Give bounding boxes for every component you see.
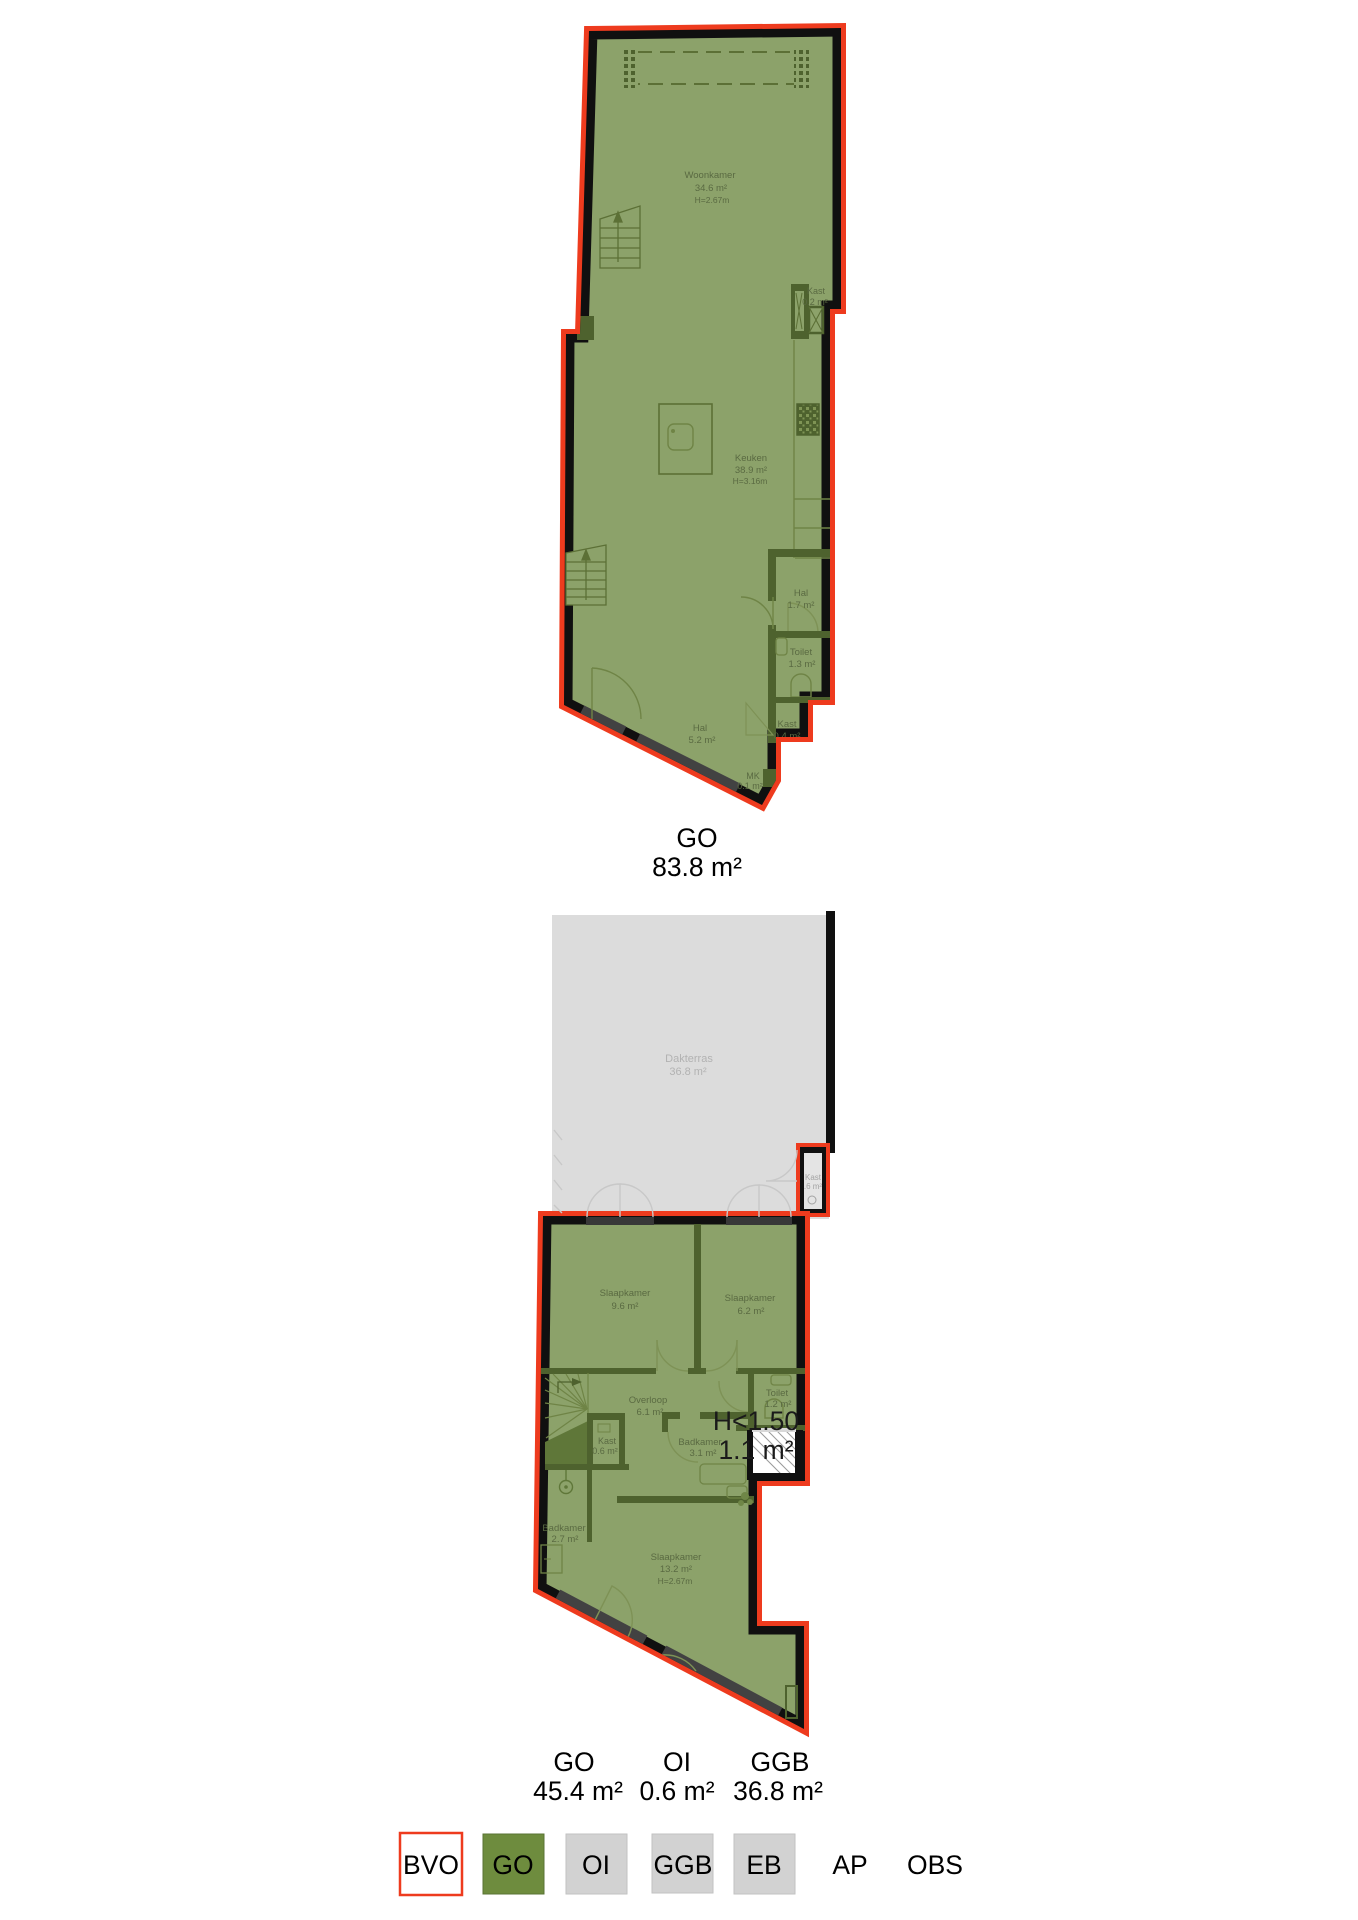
svg-text:1.1 m²: 1.1 m² — [718, 1435, 793, 1465]
svg-text:3.1 m²: 3.1 m² — [690, 1448, 717, 1459]
svg-text:Kast: Kast — [805, 1173, 822, 1182]
svg-text:OI: OI — [582, 1850, 610, 1880]
svg-text:Badkamer: Badkamer — [542, 1523, 585, 1534]
svg-text:Keuken: Keuken — [735, 453, 767, 464]
svg-text:13.2 m²: 13.2 m² — [660, 1564, 692, 1575]
svg-text:.6 m²: .6 m² — [804, 1182, 823, 1191]
svg-text:OBS: OBS — [907, 1850, 963, 1880]
svg-text:H=2.67m: H=2.67m — [695, 195, 730, 205]
svg-text:Kast: Kast — [777, 719, 796, 730]
svg-text:6.1 m²: 6.1 m² — [637, 1407, 664, 1418]
svg-text:45.4 m²: 45.4 m² — [533, 1776, 623, 1806]
svg-text:1.7 m²: 1.7 m² — [788, 600, 815, 611]
svg-text:2.7 m²: 2.7 m² — [552, 1534, 579, 1545]
svg-text:0.6 m²: 0.6 m² — [592, 1446, 618, 1456]
svg-text:EB: EB — [746, 1850, 781, 1880]
svg-text:5.2 m²: 5.2 m² — [689, 735, 716, 746]
svg-text:Dakterras: Dakterras — [665, 1053, 713, 1065]
svg-text:H=3.16m: H=3.16m — [733, 476, 768, 486]
svg-text:0.6 m²: 0.6 m² — [639, 1776, 714, 1806]
svg-text:MK: MK — [746, 771, 760, 781]
svg-text:OI: OI — [663, 1747, 691, 1777]
svg-text:H=2.67m: H=2.67m — [658, 1576, 693, 1586]
svg-text:9.6 m²: 9.6 m² — [612, 1301, 639, 1312]
svg-text:38.9 m²: 38.9 m² — [735, 465, 767, 476]
svg-text:GGB: GGB — [751, 1747, 810, 1777]
svg-text:GO: GO — [676, 823, 717, 853]
svg-text:36.8 m²: 36.8 m² — [733, 1776, 823, 1806]
svg-text:GO: GO — [553, 1747, 594, 1777]
svg-text:Slaapkamer: Slaapkamer — [600, 1288, 651, 1299]
svg-text:36.8 m²: 36.8 m² — [669, 1066, 707, 1078]
svg-text:Badkamer: Badkamer — [678, 1437, 721, 1448]
svg-text:BVO: BVO — [403, 1850, 459, 1880]
svg-text:Toilet: Toilet — [790, 647, 813, 658]
svg-text:H<1.50: H<1.50 — [713, 1406, 799, 1436]
svg-text:GGB: GGB — [654, 1850, 713, 1880]
svg-text:Toilet: Toilet — [766, 1388, 789, 1399]
svg-text:1.3 m²: 1.3 m² — [789, 659, 816, 670]
svg-text:Hal: Hal — [794, 588, 808, 599]
svg-text:0.2 m²: 0.2 m² — [802, 297, 828, 307]
svg-text:83.8 m²: 83.8 m² — [652, 852, 742, 882]
svg-text:Kast: Kast — [807, 286, 826, 296]
svg-text:GO: GO — [492, 1850, 533, 1880]
svg-text:Kast: Kast — [598, 1436, 617, 1446]
svg-text:34.6 m²: 34.6 m² — [695, 183, 727, 194]
svg-text:Slaapkamer: Slaapkamer — [725, 1293, 776, 1304]
svg-text:Hal: Hal — [693, 723, 707, 734]
svg-text:Slaapkamer: Slaapkamer — [651, 1552, 702, 1563]
svg-text:Woonkamer: Woonkamer — [684, 170, 735, 181]
svg-text:6.2 m²: 6.2 m² — [738, 1306, 765, 1317]
svg-text:AP: AP — [832, 1850, 867, 1880]
svg-text:Overloop: Overloop — [629, 1395, 668, 1406]
svg-text:0.1 m²: 0.1 m² — [737, 781, 763, 791]
